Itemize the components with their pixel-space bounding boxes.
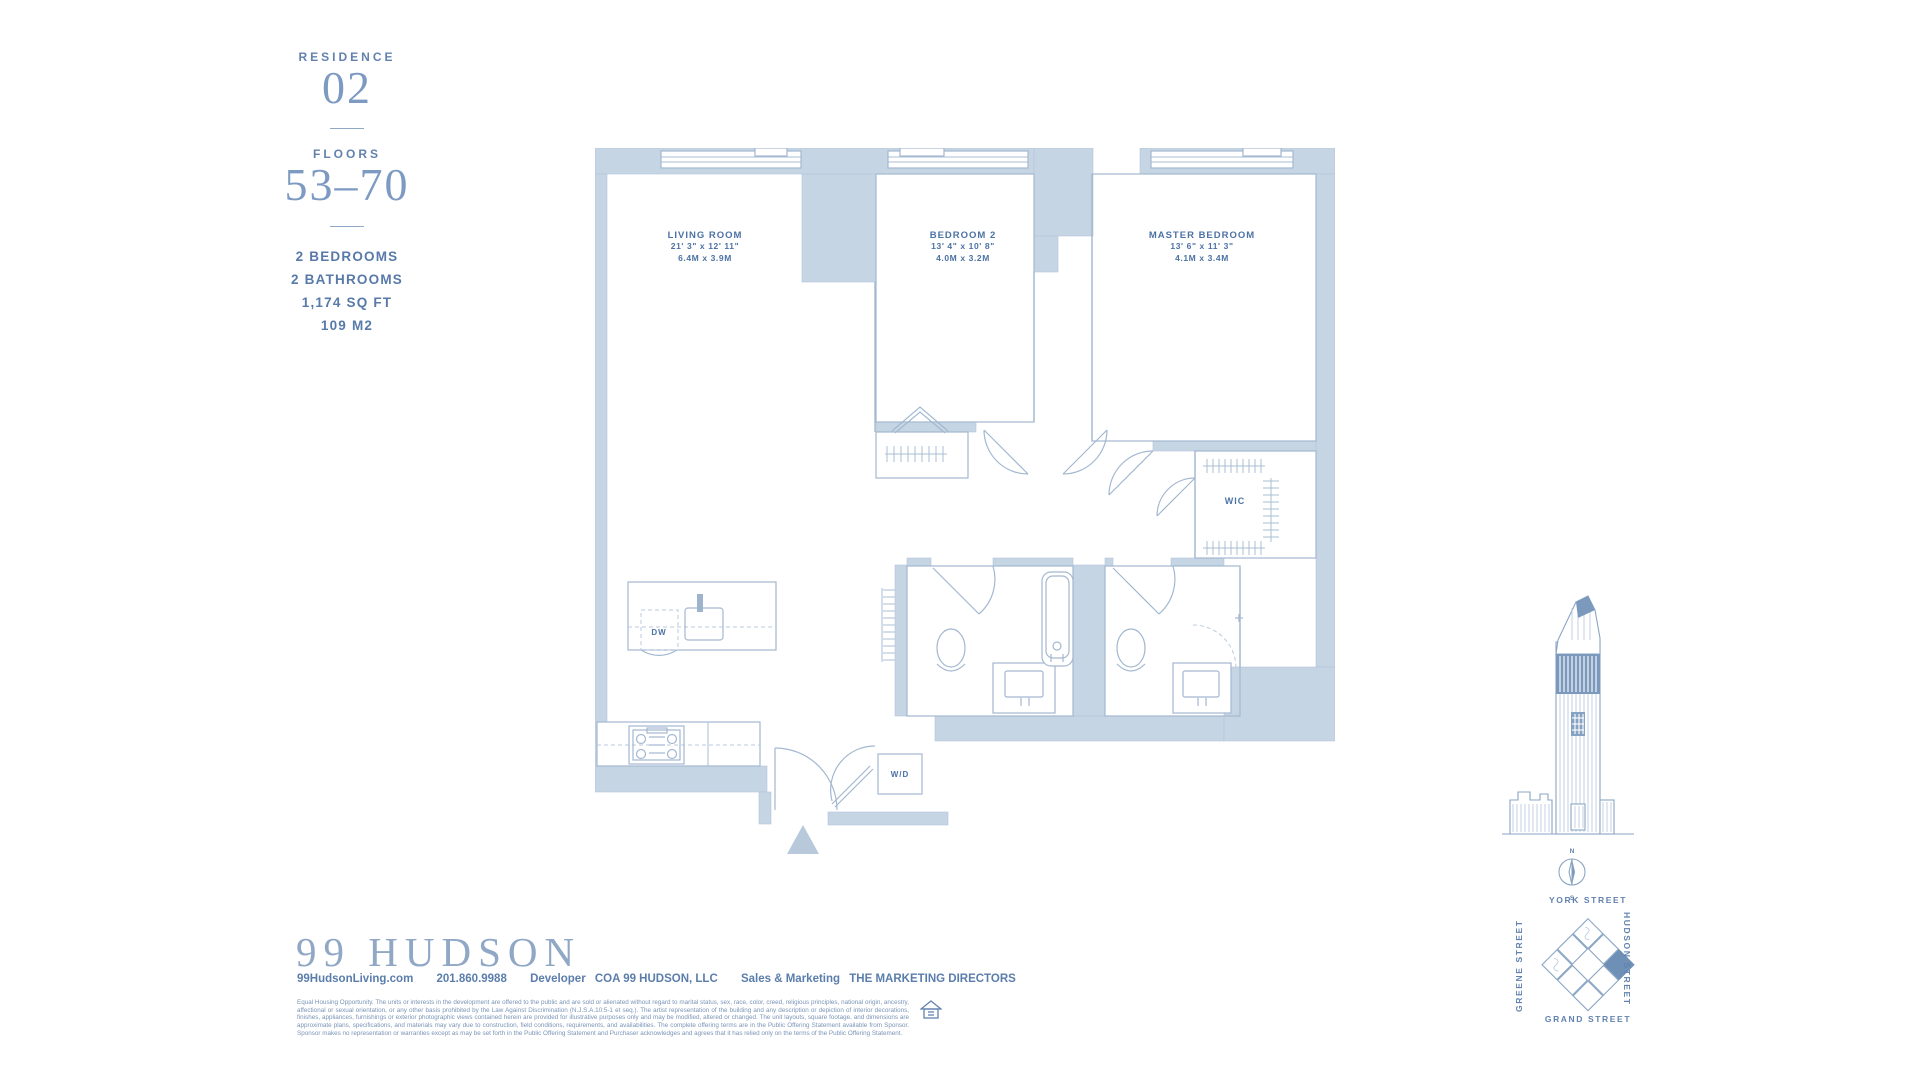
divider [330, 226, 364, 227]
unit-specs: 2 BEDROOMS 2 BATHROOMS 1,174 SQ FT 109 M… [247, 245, 447, 337]
washer-dryer-label: W/D [891, 770, 910, 779]
phone-number[interactable]: 201.860.9988 [437, 973, 507, 985]
street-label-york: YORK STREET [1518, 895, 1658, 905]
unit-info-panel: RESIDENCE 02 FLOORS 53–70 2 BEDROOMS 2 B… [247, 50, 447, 337]
sales-label: Sales & Marketing [741, 973, 840, 985]
room-label-living: LIVING ROOM 21' 3" x 12' 11" 6.4M x 3.9M [668, 230, 743, 264]
contact-line: 99HudsonLiving.com 201.860.9988 Develope… [297, 973, 1016, 985]
wic-rods [1203, 459, 1279, 555]
street-label-greene: GREENE STREET [1514, 912, 1524, 1012]
room-label-master: MASTER BEDROOM 13' 6" x 11' 3" 4.1M x 3.… [1149, 230, 1255, 264]
spec-bathrooms: 2 BATHROOMS [247, 268, 447, 291]
street-label-hudson: HUDSON STREET [1622, 912, 1632, 1012]
sales-name: THE MARKETING DIRECTORS [849, 973, 1016, 985]
legal-disclaimer: Equal Housing Opportunity. The units or … [297, 999, 909, 1038]
room-label-bedroom2: BEDROOM 2 13' 4" x 10' 8" 4.0M x 3.2M [930, 230, 997, 264]
compass-north: N [1570, 848, 1575, 855]
wic-label: WIC [1225, 496, 1246, 506]
developer-name: COA 99 HUDSON, LLC [595, 973, 718, 985]
floorplan: WIC DW W/D LIVING ROOM 21' 3" x 12' 11" … [595, 148, 1335, 860]
doors [775, 430, 1195, 810]
bedroom2-closet [876, 407, 968, 478]
building-illustration [1502, 590, 1634, 838]
residence-number: 02 [247, 64, 447, 112]
building-floor-band [1556, 654, 1600, 694]
divider [330, 128, 364, 129]
street-label-grand: GRAND STREET [1518, 1014, 1658, 1024]
equal-housing-icon [920, 999, 942, 1021]
developer-label: Developer [530, 973, 586, 985]
floors-range: 53–70 [247, 161, 447, 209]
spec-bedrooms: 2 BEDROOMS [247, 245, 447, 268]
compass-icon: N S [1550, 842, 1594, 902]
entry-arrow-icon [787, 825, 819, 854]
window-band [661, 148, 1293, 168]
kitchen-fixtures [597, 582, 776, 766]
linen-closet [882, 588, 895, 662]
spec-sqft: 1,174 SQ FT [247, 291, 447, 314]
spec-m2: 109 M2 [247, 314, 447, 337]
dishwasher-label: DW [651, 628, 666, 637]
website-link[interactable]: 99HudsonLiving.com [297, 973, 413, 985]
brand-logo: 99 HUDSON [296, 928, 581, 976]
